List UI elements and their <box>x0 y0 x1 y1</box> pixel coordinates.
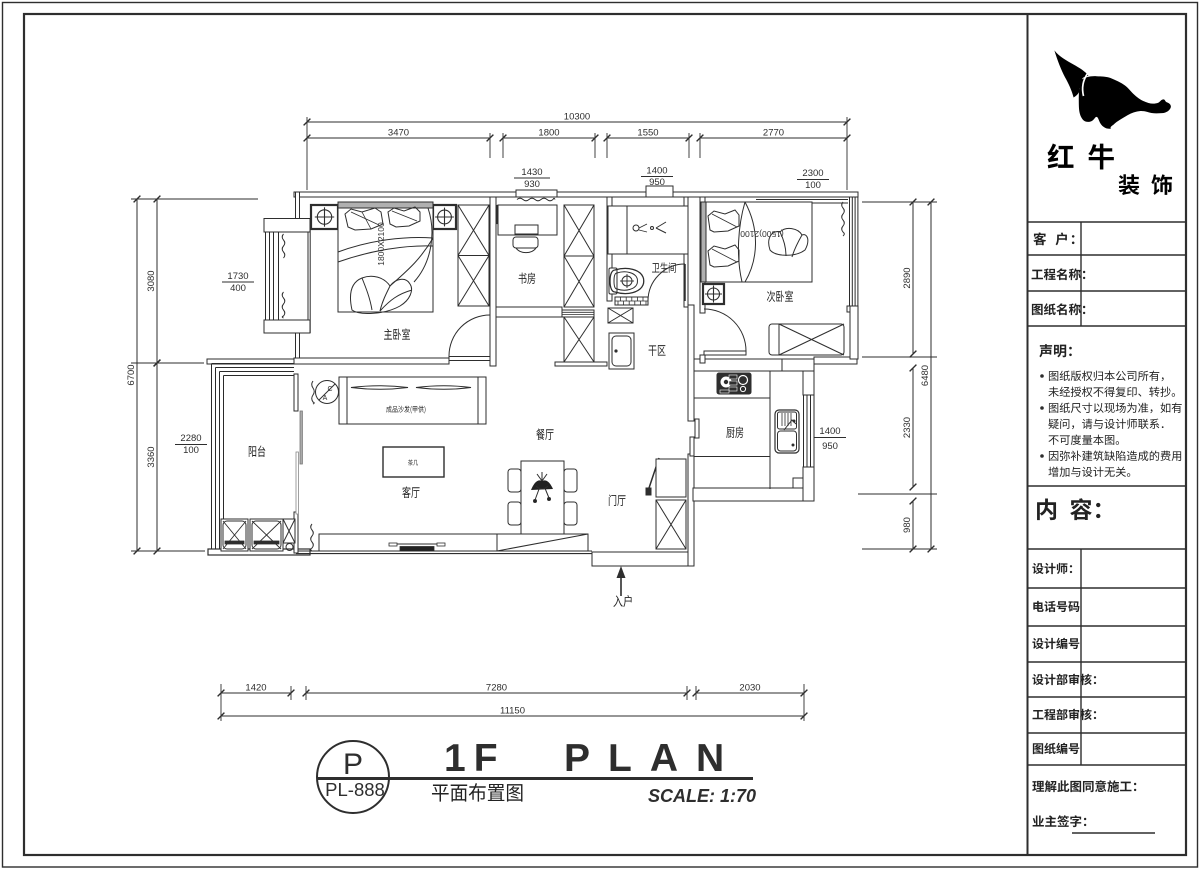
svg-text:SCALE: 1:70: SCALE: 1:70 <box>648 786 756 806</box>
svg-text:100: 100 <box>805 180 821 191</box>
svg-text:C: C <box>327 386 332 393</box>
svg-text:11150: 11150 <box>500 706 525 717</box>
svg-text:3470: 3470 <box>388 128 409 139</box>
svg-text:100: 100 <box>183 445 199 456</box>
svg-text:2300: 2300 <box>802 168 823 179</box>
svg-text:1420: 1420 <box>245 683 266 694</box>
svg-text:2770: 2770 <box>763 128 784 139</box>
svg-text:1400: 1400 <box>646 166 667 177</box>
svg-text:(1500)2100: (1500)2100 <box>740 229 784 239</box>
svg-text:1800: 1800 <box>538 128 559 139</box>
svg-text:930: 930 <box>524 179 540 190</box>
svg-text:1430: 1430 <box>521 167 542 178</box>
svg-text:P: P <box>343 748 363 781</box>
svg-text:980: 980 <box>902 517 913 533</box>
svg-text:1550: 1550 <box>637 128 658 139</box>
svg-text:10300: 10300 <box>564 112 590 123</box>
svg-text:1F: 1F <box>444 737 506 780</box>
svg-text:7280: 7280 <box>486 683 507 694</box>
svg-text:A: A <box>323 395 328 402</box>
svg-text:950: 950 <box>649 177 665 188</box>
svg-text:PL-888: PL-888 <box>325 779 385 800</box>
svg-text:2890: 2890 <box>902 267 913 288</box>
svg-text:3080: 3080 <box>146 270 157 291</box>
svg-text:6480: 6480 <box>920 365 931 386</box>
svg-text:2030: 2030 <box>739 683 760 694</box>
svg-text:2280: 2280 <box>180 433 201 444</box>
svg-text:1800X2100: 1800X2100 <box>376 222 386 266</box>
svg-text:950: 950 <box>822 441 838 452</box>
svg-text:PLAN: PLAN <box>564 737 742 780</box>
svg-text:3360: 3360 <box>146 446 157 467</box>
svg-text:6700: 6700 <box>126 364 137 385</box>
svg-text:1400: 1400 <box>819 426 840 437</box>
svg-text:400: 400 <box>230 283 246 294</box>
svg-text:1730: 1730 <box>227 271 248 282</box>
svg-text:2330: 2330 <box>902 417 913 438</box>
